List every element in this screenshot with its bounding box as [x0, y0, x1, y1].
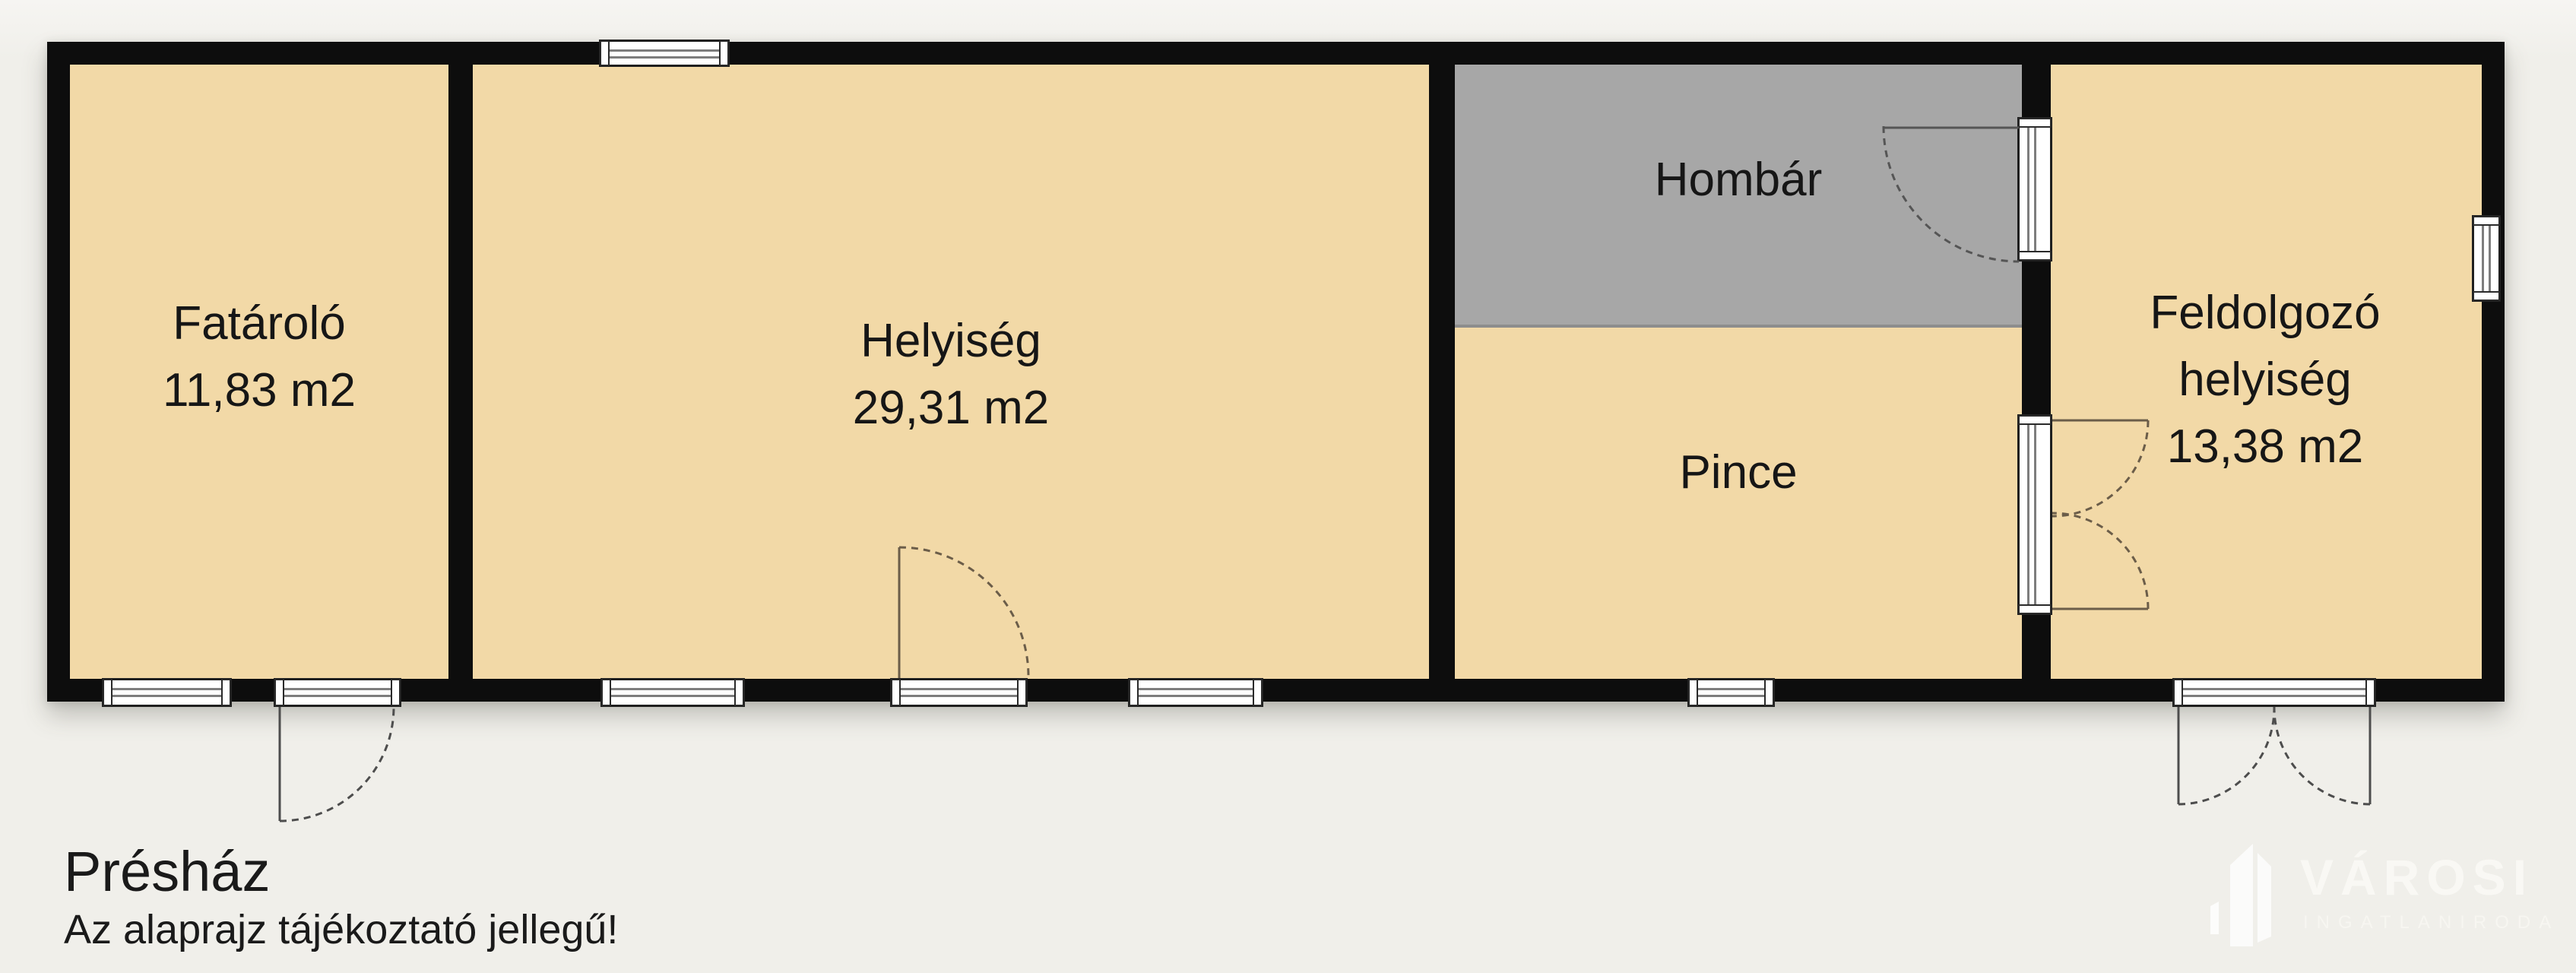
door-opening-fatarolo-exterior [274, 678, 401, 707]
window-bottom-helyiseg-right [1128, 678, 1263, 707]
room-label-fatarolo: Fatároló 11,83 m2 [163, 290, 356, 424]
floorplan-page: { "page": { "background": "#f0efea" }, "… [0, 0, 2576, 973]
room-name: Pince [1679, 439, 1797, 506]
watermark-tagline: INGATLANIRODA [2303, 912, 2559, 933]
door-fatarolo-exterior [280, 707, 394, 821]
room-name: Fatároló [163, 290, 356, 357]
room-label-helyiseg: Helyiség 29,31 m2 [853, 308, 1050, 442]
watermark-logo-icon [2210, 844, 2271, 946]
wall-partition-fatarolo-helyiseg [448, 65, 473, 679]
room-label-feldolgozo: Feldolgozó helyiség 13,38 m2 [2150, 280, 2380, 480]
building-outline [47, 42, 2505, 702]
room-name: Helyiség [853, 308, 1050, 375]
watermark-brand: VÁROSI [2300, 848, 2533, 906]
door-opening-helyiseg-exterior [890, 678, 1028, 707]
room-name: Feldolgozó [2150, 280, 2380, 347]
room-label-pince: Pince [1679, 439, 1797, 506]
room-label-hombar: Hombár [1655, 147, 1823, 214]
room-area: 13,38 m2 [2150, 414, 2380, 480]
page-title: Présház [64, 839, 270, 904]
room-area: 29,31 m2 [853, 375, 1050, 442]
door-opening-hombar-feldolgozo [2017, 117, 2052, 261]
plan-disclaimer: Az alaprajz tájékoztató jellegű! [64, 906, 618, 953]
window-bottom-helyiseg-left [600, 678, 745, 707]
room-name: helyiség [2150, 347, 2380, 414]
door-opening-pince-feldolgozo-double [2017, 414, 2052, 615]
window-bottom-pince [1687, 678, 1775, 707]
door-double-feldolgozo-exterior [2178, 707, 2370, 804]
window-right-feldolgozo [2472, 215, 2501, 302]
wall-partition-helyiseg-hombar [1429, 65, 1455, 679]
window-top-helyiseg [599, 40, 730, 67]
door-opening-feldolgozo-exterior [2172, 678, 2376, 707]
building-interior [70, 65, 2482, 679]
window-bottom-fatarolo [102, 678, 232, 707]
room-area: 11,83 m2 [163, 357, 356, 424]
room-name: Hombár [1655, 147, 1823, 214]
